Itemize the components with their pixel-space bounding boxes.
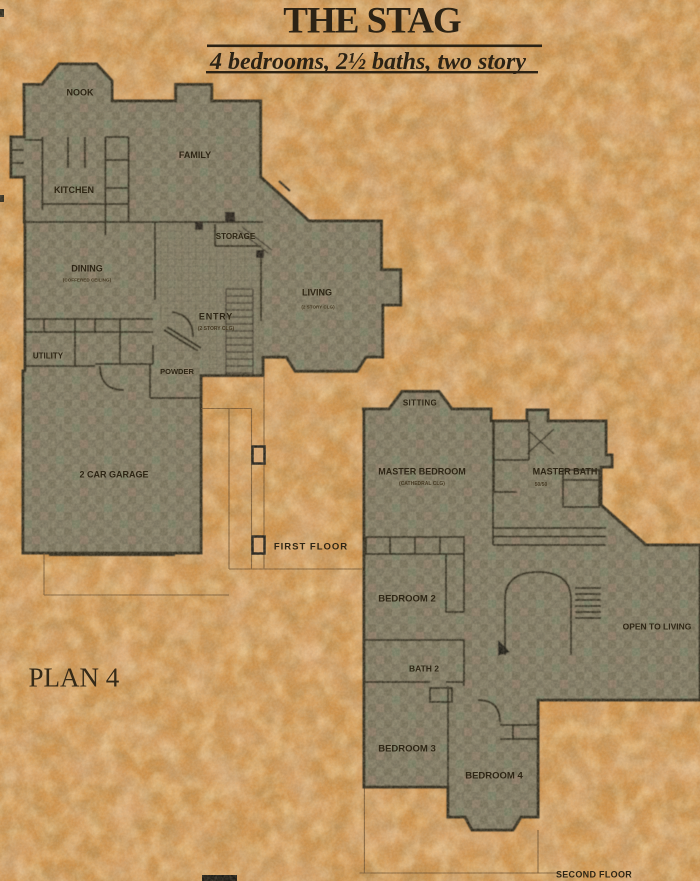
svg-text:PLAN 4: PLAN 4 — [29, 663, 120, 693]
svg-text:(COFFERED CEILING): (COFFERED CEILING) — [63, 278, 112, 283]
svg-text:STORAGE: STORAGE — [216, 232, 256, 241]
svg-text:FAMILY: FAMILY — [179, 150, 211, 160]
svg-text:BEDROOM 2: BEDROOM 2 — [378, 594, 436, 605]
svg-text:THE STAG: THE STAG — [283, 1, 461, 42]
svg-text:MASTER BEDROOM: MASTER BEDROOM — [378, 467, 466, 477]
svg-text:(2 STORY CLG): (2 STORY CLG) — [301, 305, 335, 310]
svg-text:KITCHEN: KITCHEN — [54, 185, 94, 195]
svg-text:(2 STORY CLG): (2 STORY CLG) — [198, 326, 235, 332]
svg-text:FIRST FLOOR: FIRST FLOOR — [274, 542, 348, 553]
svg-text:SITTING: SITTING — [403, 399, 437, 408]
svg-text:DINING: DINING — [71, 264, 103, 274]
svg-text:BEDROOM 4: BEDROOM 4 — [465, 771, 523, 782]
svg-text:UTILITY: UTILITY — [33, 352, 64, 361]
svg-text:SECOND FLOOR: SECOND FLOOR — [556, 870, 632, 880]
svg-text:POWDER: POWDER — [160, 367, 194, 376]
svg-text:50/50: 50/50 — [535, 482, 548, 488]
svg-text:LIVING: LIVING — [302, 288, 332, 298]
svg-text:OPEN TO LIVING: OPEN TO LIVING — [623, 622, 692, 632]
svg-text:2 CAR GARAGE: 2 CAR GARAGE — [79, 470, 148, 480]
svg-text:(CATHEDRAL CLG): (CATHEDRAL CLG) — [399, 481, 445, 487]
svg-text:BATH 2: BATH 2 — [409, 664, 439, 674]
svg-text:MASTER BATH: MASTER BATH — [533, 467, 598, 477]
svg-text:ENTRY: ENTRY — [199, 312, 233, 322]
svg-text:NOOK: NOOK — [67, 88, 95, 98]
svg-text:BEDROOM 3: BEDROOM 3 — [378, 744, 436, 755]
